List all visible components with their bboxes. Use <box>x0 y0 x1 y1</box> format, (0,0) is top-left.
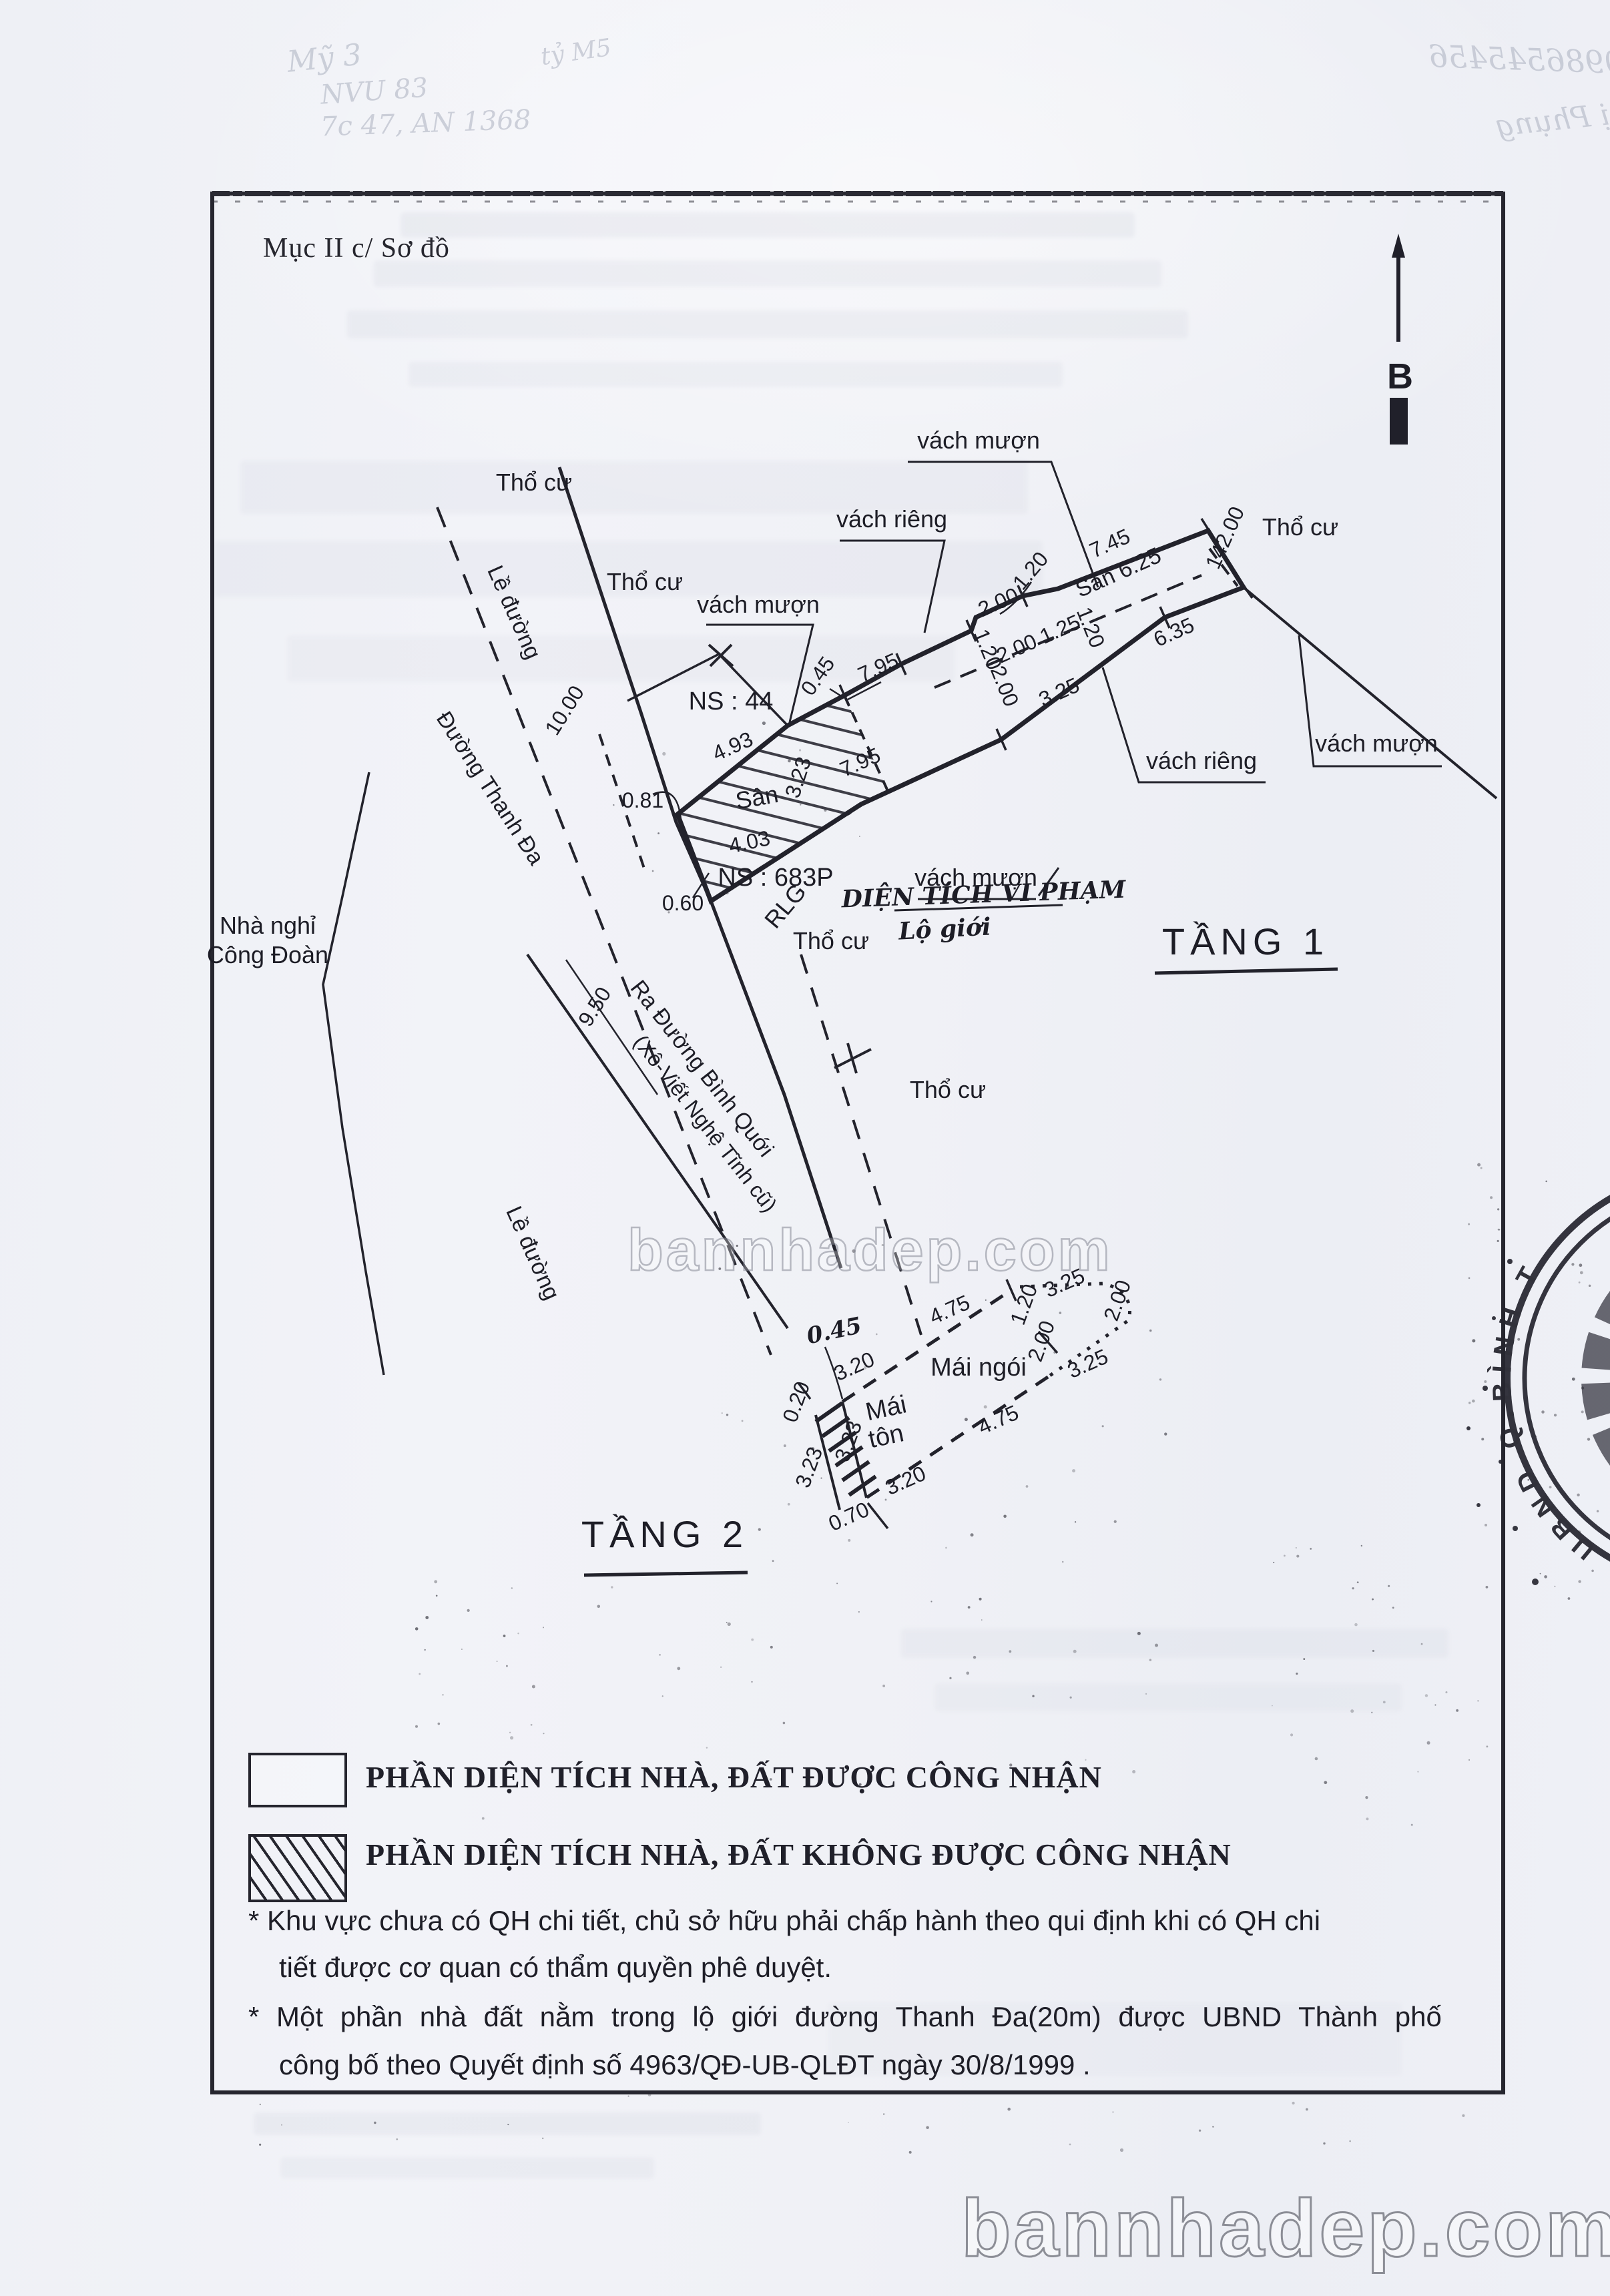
speckle <box>728 1623 731 1626</box>
speckle <box>720 1667 722 1668</box>
speckle <box>971 1533 974 1536</box>
speckle <box>260 2104 261 2105</box>
speckle <box>1597 1510 1599 1512</box>
speckle <box>396 2138 398 2140</box>
watermark-center: bannhadep.com <box>627 1216 1113 1284</box>
speckle <box>955 1436 957 1437</box>
speckle <box>1472 1400 1475 1403</box>
tang2-underline <box>584 1572 748 1575</box>
speckle <box>926 2126 929 2129</box>
diagram-label: Nhà nghỉ <box>220 912 316 939</box>
diagram-label: vách riêng <box>836 505 947 533</box>
speckle <box>1383 1701 1386 1703</box>
speckle <box>949 1677 951 1679</box>
speckle <box>415 1725 418 1728</box>
speckle <box>1499 1229 1501 1231</box>
speckle <box>726 1622 728 1623</box>
speckle <box>1112 2111 1113 2112</box>
speckle <box>1472 1339 1475 1342</box>
speckle <box>613 804 614 806</box>
speckle <box>1323 2142 1325 2144</box>
speckle <box>739 794 740 795</box>
legend-swatch-not-recognized <box>248 1834 347 1902</box>
round-official-stamp: UBND Q.BÌNH T <box>1466 1170 1610 1587</box>
speckle <box>1468 1402 1470 1404</box>
speckle <box>1392 1607 1394 1609</box>
diagram-label: Mái <box>863 1390 909 1426</box>
speckle <box>1554 1586 1555 1587</box>
diagram-label: Thổ cư <box>496 469 572 496</box>
speckle <box>438 1723 441 1725</box>
speckle <box>510 1736 513 1739</box>
speckle <box>848 1539 850 1542</box>
north-label: B <box>1387 356 1413 396</box>
legend-swatch-recognized <box>248 1753 347 1807</box>
speckle <box>415 1627 419 1631</box>
speckle <box>1456 1709 1458 1712</box>
diagram-label: TẦNG 2 <box>581 1513 748 1555</box>
speckle <box>1571 1263 1574 1265</box>
speckle <box>1350 1709 1354 1713</box>
dimension-label: 0.20 <box>778 1378 814 1426</box>
speckle <box>726 892 729 894</box>
speckle <box>864 1366 867 1370</box>
dimension-label: 142.00 <box>1201 503 1250 572</box>
speckle <box>1527 1479 1529 1481</box>
dimension-label: 3.23 <box>790 1444 827 1491</box>
speckle <box>1477 1163 1481 1167</box>
speckle <box>1149 1330 1151 1332</box>
speckle <box>883 2113 884 2114</box>
speckle <box>1199 2129 1201 2131</box>
speckle <box>531 1724 533 1726</box>
x-mark <box>709 645 733 666</box>
speckle <box>1434 1704 1436 1705</box>
speckle <box>1581 1410 1584 1413</box>
speckle <box>1427 1741 1430 1745</box>
speckle <box>1155 1644 1158 1647</box>
speckle <box>752 1681 753 1683</box>
speckle <box>981 1619 983 1621</box>
speckle <box>543 1627 544 1628</box>
speckle <box>882 1685 885 1687</box>
speckle <box>1490 1196 1493 1199</box>
speckle <box>1290 1733 1293 1736</box>
speckle <box>597 1605 600 1608</box>
speckle <box>834 1528 836 1530</box>
speckle <box>419 1673 421 1675</box>
speckle <box>1026 1485 1029 1488</box>
speckle <box>1324 1781 1327 1784</box>
dimension-label: 2.00 1.25 <box>993 609 1084 667</box>
page-border <box>212 194 1503 2092</box>
dimension-label: 2.00 <box>975 583 1023 621</box>
speckle <box>1581 1386 1584 1389</box>
speckle <box>662 1695 663 1697</box>
nha-nghi-boundary <box>323 772 384 1375</box>
speckle <box>1372 1599 1374 1601</box>
speckle <box>979 1598 981 1601</box>
dimension-label: 2.00 <box>986 662 1024 709</box>
speckle <box>1366 1817 1368 1820</box>
speckle <box>1541 1410 1545 1414</box>
dimension-label: 3.25 <box>1064 1344 1112 1383</box>
speckle <box>968 1606 971 1609</box>
speckle <box>1075 1521 1076 1522</box>
speckle <box>1164 1432 1167 1435</box>
speckle <box>1497 1208 1499 1210</box>
speckle <box>1120 2148 1123 2152</box>
speckle <box>849 814 850 815</box>
diagram-label: Lộ giới <box>897 912 991 945</box>
speckle <box>1159 1378 1161 1380</box>
note-1-line-2: tiết được cơ quan có thẩm quyền phê duyệ… <box>279 1952 832 1984</box>
dimension-label: 10.00 <box>540 681 589 740</box>
speckle <box>1296 1547 1297 1548</box>
speckle <box>762 722 766 725</box>
section-title: Mục II c/ Sơ đồ <box>263 232 450 264</box>
speckle <box>799 749 801 751</box>
speckle <box>1272 1705 1273 1707</box>
speckle <box>659 1654 661 1656</box>
speckle <box>1589 1285 1591 1287</box>
note-2-line-1: * Một phần nhà đất nằm trong lộ giới đườ… <box>248 2001 1442 2033</box>
speckle <box>1284 1554 1286 1556</box>
speckle <box>930 1601 932 1602</box>
speckle <box>1212 2126 1214 2127</box>
speckle <box>824 809 826 812</box>
speckle <box>1580 1271 1583 1274</box>
speckle <box>800 804 801 806</box>
dimension-label: 6.35 <box>1150 613 1198 651</box>
speckle <box>281 2124 282 2126</box>
legend-label-not-recognized: PHẦN DIỆN TÍCH NHÀ, ĐẤT KHÔNG ĐƯỢC CÔNG … <box>366 1837 1232 1872</box>
dimension-label: 3.20 <box>830 1347 878 1386</box>
speckle <box>1114 1520 1117 1523</box>
diagram-label: vách riêng <box>1146 747 1257 774</box>
diagram-label: Thổ cư <box>1262 513 1338 541</box>
speckle <box>511 1587 513 1589</box>
speckle <box>467 1609 470 1612</box>
note-2-line-2: công bố theo Quyết định số 4963/QĐ-UB-QL… <box>279 2049 1091 2081</box>
speckle <box>1421 1643 1423 1645</box>
speckle <box>507 2124 509 2125</box>
speckle <box>965 1418 968 1421</box>
speckle <box>517 1633 519 1634</box>
speckle <box>1003 1515 1007 1518</box>
speckle <box>772 1560 774 1562</box>
speckle <box>1577 1494 1579 1496</box>
tick-line <box>834 1043 871 1073</box>
speckle <box>1072 1469 1075 1472</box>
speckle <box>648 2093 651 2096</box>
speckle <box>742 1420 744 1422</box>
speckle <box>858 1611 860 1613</box>
speckle <box>1310 1548 1312 1550</box>
speckle <box>1102 1425 1104 1427</box>
speckle <box>1468 1759 1470 1761</box>
speckle <box>532 1685 535 1689</box>
speckle <box>984 1405 987 1408</box>
speckle <box>783 1722 786 1725</box>
speckle <box>424 1649 425 1651</box>
speckle <box>1059 1312 1062 1314</box>
diagram-label: Lề đường <box>501 1203 564 1304</box>
speckle <box>259 2144 261 2146</box>
speckle <box>436 1595 438 1597</box>
speckle <box>1372 1650 1374 1652</box>
dimension-label: 0.45 <box>804 1312 864 1350</box>
dimension-label: 7.95 <box>854 648 902 687</box>
speckle <box>1549 1486 1552 1488</box>
speckle <box>758 1528 761 1531</box>
speckle <box>1032 1695 1034 1697</box>
speckle <box>1303 1658 1305 1660</box>
speckle <box>848 2122 849 2123</box>
speckle <box>434 1580 437 1583</box>
speckle <box>836 1583 838 1584</box>
speckle <box>1388 1585 1390 1587</box>
dimension-label: 3.23 <box>830 1418 866 1465</box>
note-1-line-1: * Khu vực chưa có QH chi tiết, chủ sở hữ… <box>248 1905 1320 1937</box>
speckle <box>788 1503 790 1506</box>
diagram-label: TẦNG 1 <box>1162 920 1329 962</box>
speckle <box>1292 2102 1294 2104</box>
speckle <box>1137 1632 1141 1635</box>
speckle <box>1536 1436 1537 1437</box>
speckle <box>1073 1650 1077 1653</box>
speckle <box>1591 1570 1594 1572</box>
speckle <box>667 911 669 913</box>
speckle <box>1008 1370 1011 1373</box>
dimension-label: 0.45 <box>796 652 839 700</box>
speckle <box>1365 1796 1368 1799</box>
speckle <box>1497 1240 1499 1242</box>
speckle <box>1578 1580 1581 1583</box>
speckle <box>1468 1223 1470 1225</box>
vach-rieng-top-leader <box>840 541 945 633</box>
speckle <box>973 1656 976 1659</box>
speckle <box>784 1444 786 1447</box>
diagram-label: Thổ cư <box>793 927 869 954</box>
speckle <box>1462 2114 1464 2117</box>
speckle <box>374 2122 376 2124</box>
diagram-label: Công Đoàn <box>207 941 328 968</box>
speckle <box>1486 1745 1488 1747</box>
speckle <box>1296 1673 1298 1675</box>
speckle <box>1481 1438 1484 1440</box>
diagram-label: vách mượn <box>917 426 1040 454</box>
speckle <box>1411 1824 1413 1826</box>
speckle <box>652 870 654 872</box>
speckle <box>1349 2140 1351 2142</box>
speckle <box>1587 1438 1590 1440</box>
speckle <box>876 1334 878 1336</box>
dimension-label: 0.70 <box>825 1497 873 1536</box>
speckle <box>770 1646 773 1649</box>
speckle <box>1445 1691 1447 1693</box>
speckle <box>1273 1562 1274 1563</box>
speckle <box>1354 1623 1358 1627</box>
diagram-label: vách mượn <box>1315 730 1438 757</box>
speckle <box>820 1477 822 1478</box>
speckle <box>985 1300 987 1301</box>
speckle <box>1540 1573 1541 1574</box>
dimension-label: 4.75 <box>975 1400 1023 1439</box>
speckle <box>1579 1281 1581 1283</box>
dimension-label: 1.20 <box>1008 547 1053 595</box>
speckle <box>1361 1545 1362 1546</box>
diagram-label: vách mượn <box>697 591 820 618</box>
dimension-label: 0.81 <box>622 788 663 812</box>
speckle <box>1009 1650 1011 1653</box>
speckle <box>1544 1575 1547 1579</box>
speckle <box>506 1665 508 1667</box>
speckle <box>945 1547 947 1549</box>
speckle <box>628 2095 629 2096</box>
speckle <box>542 2138 543 2139</box>
watermark-bottom: bannhadep.com <box>961 2181 1610 2275</box>
speckle <box>1149 1659 1151 1661</box>
speckle <box>1007 2108 1011 2111</box>
speckle <box>1053 1351 1056 1354</box>
speckle <box>1481 1167 1483 1169</box>
speckle <box>1371 1712 1372 1713</box>
speckle <box>662 752 665 756</box>
speckle <box>706 1747 708 1748</box>
speckle <box>966 1672 969 1675</box>
speckle <box>1132 1770 1135 1773</box>
speckle <box>461 1649 463 1650</box>
speckle <box>722 1412 723 1414</box>
scanned-document-page: Mỹ 3NVU 83tỷ M57c 47, AN 13680986545456C… <box>0 0 1610 2296</box>
speckle <box>1485 1524 1487 1526</box>
speckle <box>1477 1700 1479 1701</box>
speckle <box>811 1447 814 1450</box>
speckle <box>677 1667 680 1670</box>
diagram-label: Thổ cư <box>910 1076 986 1103</box>
speckle <box>1484 1380 1487 1383</box>
speckle <box>1070 1697 1072 1699</box>
speckle <box>1545 1181 1547 1183</box>
diagram-label: Mái ngói <box>930 1354 1027 1382</box>
speckle <box>543 1733 544 1734</box>
speckle <box>1145 1693 1147 1695</box>
speckle <box>885 1499 887 1501</box>
dimension-label: 3.20 <box>882 1461 930 1500</box>
speckle <box>1352 1587 1354 1589</box>
speckle <box>1572 1378 1575 1381</box>
speckle <box>425 1616 429 1619</box>
speckle <box>1486 1586 1489 1589</box>
speckle <box>1315 1757 1318 1761</box>
speckle <box>482 1817 485 1820</box>
speckle <box>1578 1530 1581 1533</box>
dimension-label: 4.75 <box>926 1290 974 1329</box>
speckle <box>1357 1581 1359 1583</box>
speckle <box>497 1661 498 1662</box>
speckle <box>443 1694 444 1695</box>
speckle <box>1306 2108 1308 2110</box>
legend-label-recognized: PHẦN DIỆN TÍCH NHÀ, ĐẤT ĐƯỢC CÔNG NHẬN <box>366 1759 1102 1795</box>
speckle <box>1568 1597 1571 1600</box>
speckle <box>751 1639 754 1641</box>
tang1-underline <box>1155 969 1338 973</box>
speckle <box>1069 2144 1071 2146</box>
speckle <box>1417 1771 1418 1772</box>
dimension-label: 3.25 <box>1035 673 1083 711</box>
diagram-label: Thổ cư <box>607 568 683 595</box>
speckle <box>726 1414 728 1416</box>
speckle <box>1468 1277 1470 1279</box>
north-arrow: B <box>1387 234 1413 445</box>
speckle <box>611 1586 613 1588</box>
speckle <box>1296 1554 1299 1557</box>
diagram-label: Đường Thanh Đa <box>431 707 549 870</box>
speckle <box>1579 1263 1583 1267</box>
speckle <box>1517 1338 1520 1341</box>
speckle <box>1425 1694 1428 1697</box>
diagram-label: NS : 44 <box>689 687 774 715</box>
diagram-label: NS : 683P <box>718 864 833 892</box>
speckle <box>1062 1561 1064 1563</box>
speckle <box>788 760 791 763</box>
speckle <box>509 1732 511 1733</box>
speckle <box>1554 1414 1557 1416</box>
speckle <box>657 832 659 834</box>
speckle <box>503 1635 506 1637</box>
speckle <box>859 836 860 837</box>
speckle <box>909 2151 912 2154</box>
